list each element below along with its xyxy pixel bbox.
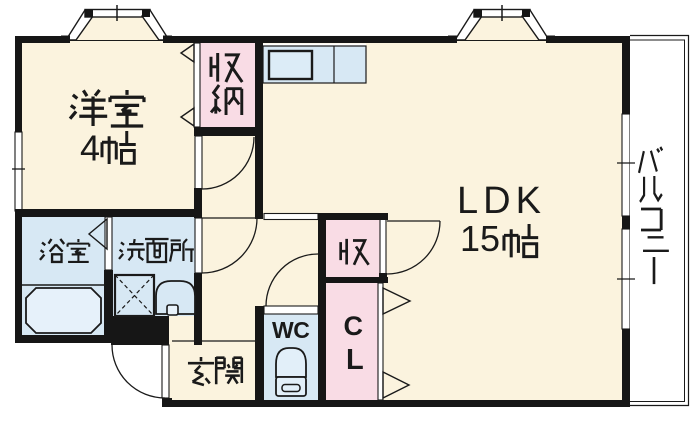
svg-text:LDK: LDK — [457, 180, 546, 222]
svg-text:15: 15 — [460, 218, 500, 259]
svg-text:4: 4 — [80, 128, 100, 169]
svg-text:C: C — [344, 311, 364, 341]
svg-text:WC: WC — [272, 317, 309, 343]
svg-text:L: L — [346, 344, 364, 376]
